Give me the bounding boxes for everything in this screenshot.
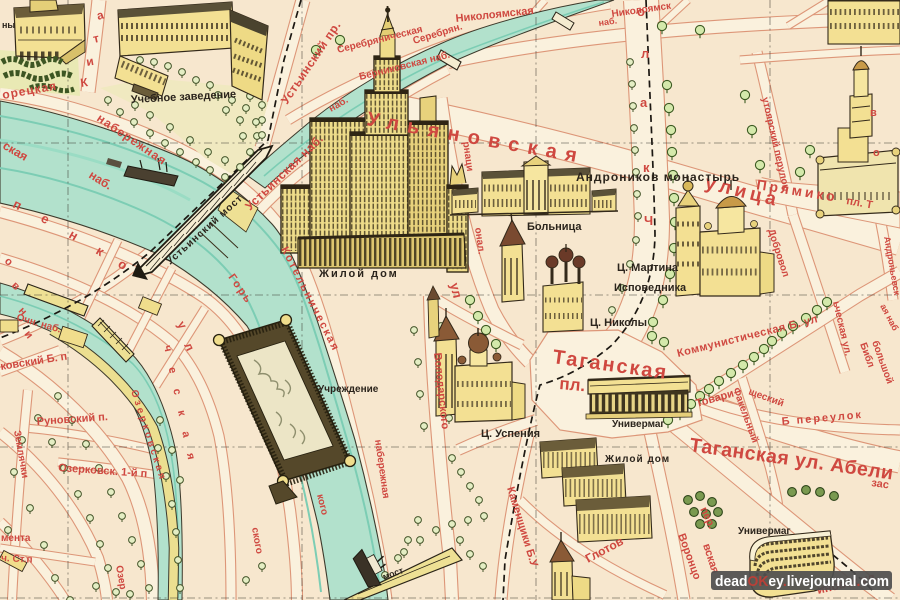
svg-text:Исповедника: Исповедника xyxy=(614,282,687,294)
svg-text:ны: ны xyxy=(2,20,15,30)
svg-text:а: а xyxy=(640,95,648,110)
svg-text:Ц. Мартина: Ц. Мартина xyxy=(617,262,679,274)
svg-text:Ч: Ч xyxy=(644,213,653,228)
svg-text:о: о xyxy=(637,4,645,19)
svg-text:Андроников монастырь: Андроников монастырь xyxy=(576,170,740,184)
svg-text:Учреждение: Учреждение xyxy=(318,384,379,395)
svg-text:в: в xyxy=(870,107,877,119)
svg-text:л: л xyxy=(641,46,649,61)
svg-text:пл.: пл. xyxy=(559,374,586,395)
svg-text:Ц. Успения: Ц. Успения xyxy=(481,428,540,440)
svg-text:зас: зас xyxy=(871,477,890,491)
svg-text:Больница: Больница xyxy=(527,221,582,233)
svg-text:Универмаг: Универмаг xyxy=(612,419,665,430)
svg-text:Жилой дом: Жилой дом xyxy=(318,268,399,280)
svg-text:о: о xyxy=(873,147,880,159)
svg-text:Ц. Николы: Ц. Николы xyxy=(590,317,647,329)
svg-text:ч. Ст.п: ч. Ст.п xyxy=(1,553,33,566)
svg-text:deadOKey.livejournal.com: deadOKey.livejournal.com xyxy=(715,573,889,590)
svg-text:Универмаг: Универмаг xyxy=(738,526,791,537)
svg-text:мента: мента xyxy=(1,533,31,544)
svg-text:Жилой дом: Жилой дом xyxy=(604,454,670,465)
